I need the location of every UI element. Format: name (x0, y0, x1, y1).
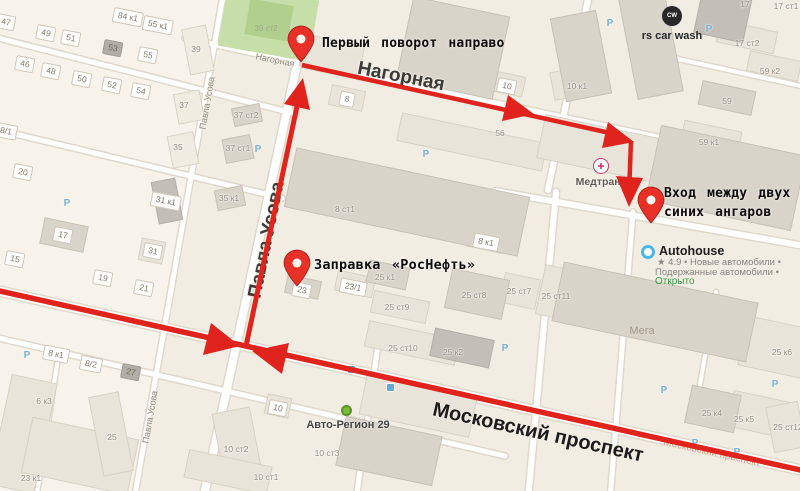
building-label: 21 (133, 279, 155, 297)
building-label: 49 (35, 24, 57, 42)
building-label: 27 (120, 363, 142, 381)
parking-icon: Р (64, 199, 71, 209)
building-label: 8/1 (0, 122, 18, 140)
annotation-entrance-line2: синих ангаров (664, 205, 771, 220)
map-labels: Нагорная Нагорная Павла Усова Павла Усов… (0, 0, 800, 491)
parking-icon: Р (255, 145, 262, 155)
building-label: 51 (60, 29, 82, 47)
autohouse-icon[interactable] (641, 245, 655, 259)
transit-stop-icon (386, 383, 395, 392)
building-label: 35 (173, 143, 182, 152)
building-label: 8 ст1 (335, 205, 355, 214)
building-label: 19 (92, 269, 114, 287)
street-label-nagornaya: Нагорная (356, 58, 447, 96)
autoregion-tree-icon (341, 405, 352, 416)
street-label-pavla-usova-small-top: Павла Усова (197, 76, 216, 130)
building-label: 52 (101, 76, 123, 94)
building-label: 17 (52, 226, 74, 244)
parking-icon: Р (502, 344, 509, 354)
annotation-first-turn: Первый поворот направо (322, 36, 505, 51)
street-label-pavla-usova: Павла Усова (244, 180, 289, 300)
building-label: 10 ст2 (224, 445, 249, 454)
building-label: 48 (40, 62, 62, 80)
parking-icon: Р (661, 386, 668, 396)
building-label: 53 (102, 39, 124, 57)
annotation-gas-station: Заправка «РосНефть» (314, 257, 475, 273)
building-label: 25 ст7 (507, 287, 532, 296)
building-label: 31 к1 (150, 191, 182, 211)
building-label: 17 ст1 (774, 2, 799, 11)
parking-icon: Р (772, 380, 779, 390)
street-label-pavla-usova-small-bottom: Павла Усова (140, 390, 159, 444)
autohouse-status: Открыто (655, 276, 695, 287)
building-label: 10 (267, 399, 289, 417)
parking-icon: Р (734, 448, 741, 458)
building-label: 39 (191, 45, 200, 54)
building-label: 50 (71, 70, 93, 88)
building-label: 25 к4 (702, 409, 722, 418)
building-label: 25 ст10 (388, 344, 417, 353)
building-label: 8 (338, 90, 355, 107)
transit-stop-icon (347, 365, 356, 374)
car-wash-icon[interactable]: CW (662, 6, 682, 26)
car-wash-label: rs car wash (642, 30, 703, 42)
annotation-entrance-line1: Вход между двух (664, 186, 790, 201)
medtrans-label: Медтранс (576, 176, 627, 188)
building-label: 25 к1 (375, 273, 395, 282)
parking-icon: Р (706, 25, 713, 35)
medtrans-icon[interactable]: ✚ (593, 158, 609, 174)
building-label: 25 ст11 (542, 292, 571, 301)
autohouse-name: Autohouse (659, 244, 724, 258)
building-label: 8 к1 (472, 232, 500, 251)
building-label: 25 ст12 (773, 423, 800, 432)
building-label: 15 (4, 250, 26, 268)
building-label: 47 (0, 13, 17, 31)
building-label: 59 к1 (699, 138, 719, 147)
building-label: 55 (137, 46, 159, 64)
building-label: 10 к1 (567, 82, 587, 91)
building-label: 6 к3 (36, 397, 52, 406)
building-label: 23 к1 (21, 474, 41, 483)
building-label: 35 к1 (219, 194, 239, 203)
building-label: 23 (291, 281, 313, 299)
building-label: 25 к2 (443, 348, 463, 357)
building-label: 25 к5 (734, 415, 754, 424)
street-label-moskovsky-small: Московский проспект (662, 437, 761, 469)
building-label: 37 ст1 (226, 144, 251, 153)
building-label: 10 ст1 (254, 473, 279, 482)
building-label: 39 ст2 (254, 25, 277, 33)
building-label: 37 (179, 101, 188, 110)
building-label: 25 ст8 (462, 291, 487, 300)
building-label: 20 (12, 163, 34, 181)
building-label: 54 (130, 82, 152, 100)
autoregion-label: Авто-Регион 29 (306, 419, 389, 431)
building-label: 25 ст9 (385, 303, 410, 312)
building-label: 55 к1 (142, 15, 174, 35)
street-label-nagornaya-small: Нагорная (255, 51, 296, 68)
building-label: 46 (14, 55, 36, 73)
parking-icon: Р (607, 19, 614, 29)
building-label: 31 (142, 242, 164, 260)
building-label: 23/1 (339, 277, 368, 296)
building-label: 17 ст2 (735, 39, 760, 48)
building-label: 10 ст3 (315, 449, 340, 458)
building-label: 25 к6 (772, 348, 792, 357)
building-label: 37 ст2 (234, 111, 259, 120)
mega-label: Мега (629, 325, 654, 337)
building-label: 59 к2 (760, 67, 780, 76)
map-canvas[interactable]: Нагорная Нагорная Павла Усова Павла Усов… (0, 0, 800, 491)
parking-icon: Р (692, 439, 699, 449)
building-label: 25 (107, 433, 116, 442)
building-label: 8/2 (79, 355, 103, 373)
parking-icon: Р (423, 150, 430, 160)
building-label: 84 к1 (112, 7, 144, 27)
building-label: 10 (496, 77, 518, 95)
building-label: 59 (722, 97, 731, 106)
building-label: 8 к1 (42, 344, 70, 363)
building-label: 17 (740, 0, 749, 8)
building-label: 56 (495, 129, 504, 138)
parking-icon: Р (24, 351, 31, 361)
